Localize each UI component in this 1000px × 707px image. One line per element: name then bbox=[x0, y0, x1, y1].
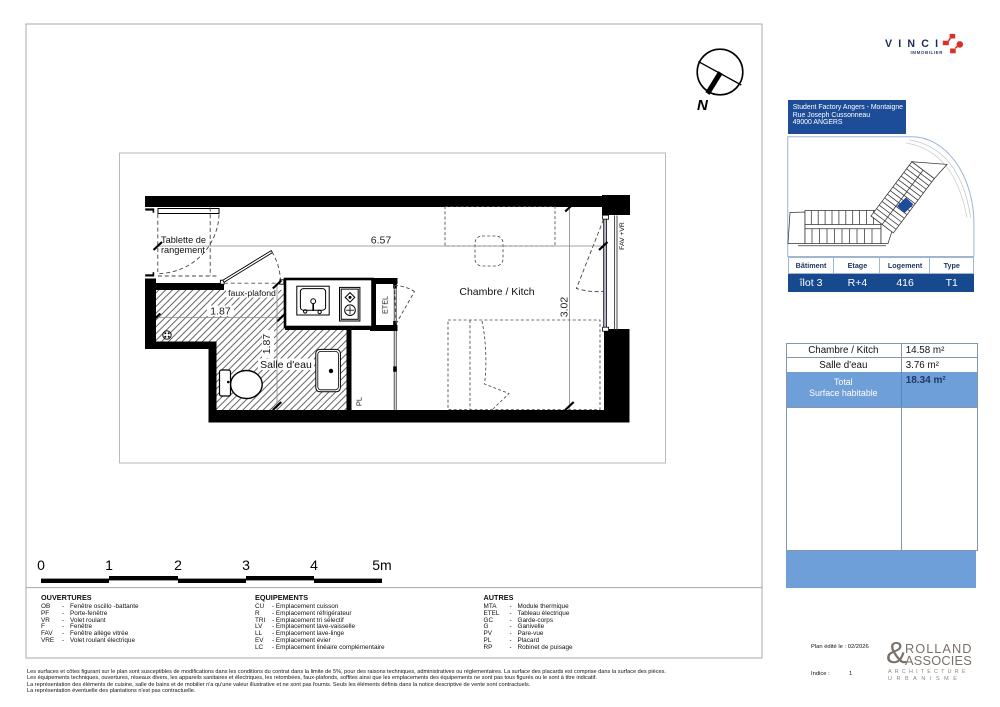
svg-text:PL: PL bbox=[355, 397, 364, 406]
svg-text:FAV +VR: FAV +VR bbox=[619, 222, 626, 250]
svg-text:5m: 5m bbox=[372, 557, 391, 573]
svg-text:3.02: 3.02 bbox=[559, 297, 571, 318]
svg-text:0: 0 bbox=[37, 557, 45, 573]
svg-text:Tablette de: Tablette de bbox=[161, 235, 206, 245]
svg-text:faux-plafond: faux-plafond bbox=[228, 288, 276, 298]
svg-text:ETEL: ETEL bbox=[381, 296, 390, 314]
svg-text:1.87: 1.87 bbox=[261, 334, 273, 355]
svg-text:1.87: 1.87 bbox=[210, 306, 231, 318]
svg-text:3: 3 bbox=[242, 557, 250, 573]
svg-text:rangement: rangement bbox=[161, 245, 205, 255]
svg-text:6.57: 6.57 bbox=[371, 235, 392, 247]
svg-text:2: 2 bbox=[174, 557, 182, 573]
svg-text:N: N bbox=[697, 97, 709, 114]
svg-text:1: 1 bbox=[105, 557, 113, 573]
svg-text:Chambre / Kitch: Chambre / Kitch bbox=[459, 286, 534, 298]
svg-text:4: 4 bbox=[310, 557, 318, 573]
svg-text:Salle d'eau: Salle d'eau bbox=[260, 359, 312, 371]
